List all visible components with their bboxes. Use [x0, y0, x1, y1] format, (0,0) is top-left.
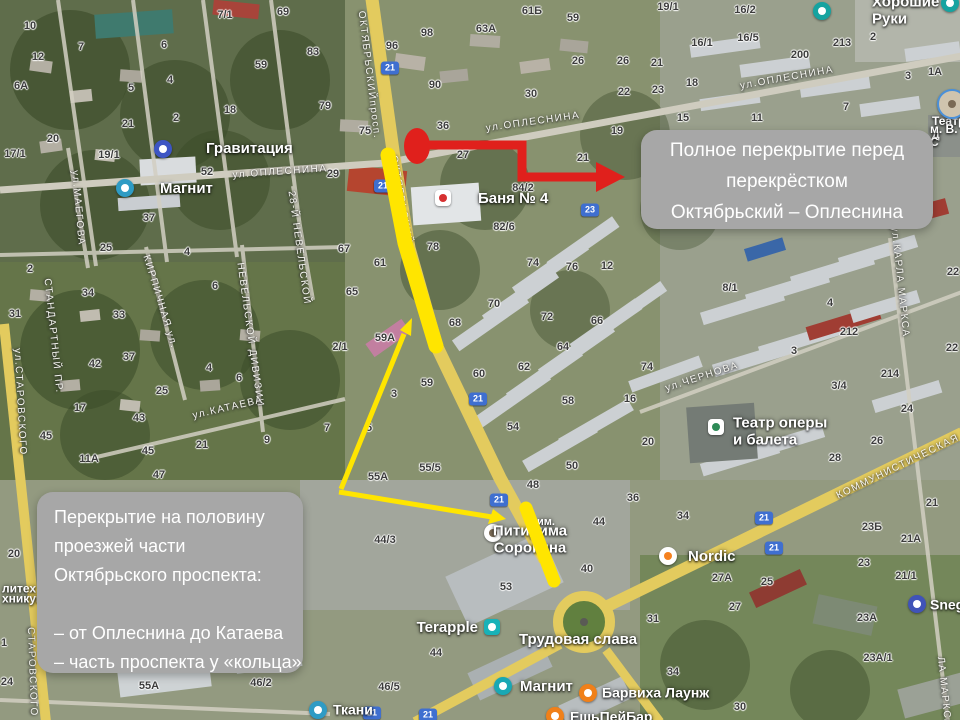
building-number: 18 — [686, 77, 698, 89]
poi-icon-glyph — [913, 600, 921, 608]
building-number: 19 — [611, 125, 623, 137]
poi-label: Магнит — [520, 679, 573, 696]
building-number: 17 — [74, 402, 86, 414]
building-number: 82/6 — [493, 221, 514, 233]
building-number: 19/1 — [657, 1, 678, 13]
map-decor — [790, 252, 875, 289]
building-number: 21 — [122, 118, 134, 130]
poi-icon-glyph — [551, 712, 559, 720]
building-number: 8/1 — [722, 282, 737, 294]
building-number: 2 — [27, 263, 33, 275]
building-number: 63А — [476, 23, 496, 35]
road-shield: 23 — [581, 204, 599, 217]
callout-line: Перекрытие на половину — [54, 503, 303, 532]
building-number: 15 — [677, 112, 689, 124]
building-number: 26 — [871, 435, 883, 447]
road-shield: 21 — [490, 494, 508, 507]
poi-label: ЕшьПейБар — [570, 709, 652, 720]
map-decor — [538, 321, 615, 380]
map-decor — [240, 330, 340, 430]
road-shield: 21 — [469, 393, 487, 406]
poi-icon-glyph — [314, 706, 322, 714]
map-decor — [467, 640, 552, 701]
building-number: 4 — [167, 74, 173, 86]
map: 10126А767/169835954182212017/119/1523798… — [0, 0, 960, 720]
map-decor — [712, 340, 797, 377]
map-decor — [559, 39, 588, 54]
street-label: ул.МАЕГОВА — [69, 170, 87, 246]
building-number: 27 — [729, 601, 741, 613]
building-number: 61 — [374, 257, 386, 269]
building-number: 31 — [9, 308, 21, 320]
building-number: 26 — [572, 55, 584, 67]
street-label: ул.ОПЛЕСНИНА — [739, 64, 835, 91]
map-decor — [859, 96, 920, 117]
map-decor — [790, 650, 870, 720]
building-number: 74 — [641, 361, 653, 373]
building-number: 55А — [368, 471, 388, 483]
poi-icon — [546, 707, 564, 720]
building-number: 46/5 — [378, 681, 399, 693]
map-decor — [140, 329, 161, 341]
building-number: 34 — [677, 510, 689, 522]
building-number: 55/5 — [419, 462, 440, 474]
building-number: 70 — [488, 298, 500, 310]
map-decor — [0, 262, 345, 480]
half-closure-arrow-1 — [341, 318, 412, 489]
building-number: 25 — [100, 242, 112, 254]
building-number: 76 — [566, 261, 578, 273]
map-decor — [79, 309, 100, 322]
map-decor — [813, 594, 878, 636]
poi-icon-glyph — [499, 682, 507, 690]
building-number: 27А — [712, 572, 732, 584]
building-number: 69 — [277, 6, 289, 18]
map-decor — [522, 421, 598, 472]
building-number: 24 — [901, 403, 913, 415]
building-number: 214 — [881, 368, 899, 380]
map-decor — [744, 237, 786, 261]
building-number: 16/2 — [734, 4, 755, 16]
building-number: 74 — [527, 257, 539, 269]
poi-icon — [309, 701, 327, 719]
street-label: СТАНДАРТНЫЙ ПР. — [41, 278, 64, 394]
map-decor — [212, 0, 259, 19]
map-decor — [530, 270, 610, 350]
building-number: 33 — [113, 309, 125, 321]
poi-label: м. В. С — [930, 123, 960, 149]
building-number: 9 — [264, 434, 270, 446]
road-oktyabrsky — [371, 0, 545, 560]
building-number: 4 — [827, 297, 833, 309]
map-decor — [749, 569, 807, 608]
poi-icon-glyph — [439, 194, 447, 202]
building-number: 20 — [8, 548, 20, 560]
building-number: 21/1 — [895, 570, 916, 582]
poi-icon — [659, 547, 677, 565]
map-decor — [94, 149, 115, 162]
building-number: 67 — [338, 243, 350, 255]
building-number: 3 — [791, 345, 797, 357]
building-number: 20 — [642, 436, 654, 448]
callout-line: – от Оплеснина до Катаева — [54, 619, 303, 648]
building-number: 43 — [133, 412, 145, 424]
building-number: 37 — [123, 351, 135, 363]
building-number: 50 — [566, 460, 578, 472]
map-decor — [558, 676, 632, 720]
poi-icon-glyph — [818, 7, 826, 15]
poi-icon — [813, 2, 831, 20]
callout-line: проезжей части — [54, 532, 303, 561]
map-decor — [394, 53, 426, 71]
poi-label: Terapple — [417, 620, 478, 637]
poi-icon-glyph — [584, 689, 592, 697]
building-number: 7/1 — [217, 9, 232, 21]
map-decor — [29, 59, 52, 74]
building-number: 5 — [128, 82, 134, 94]
poi-label: Театр д — [932, 115, 960, 141]
building-number: 45 — [142, 445, 154, 457]
building-number: 25 — [156, 385, 168, 397]
building-number: 11 — [751, 112, 763, 124]
building-number: 25 — [761, 576, 773, 588]
building-number: 4 — [184, 246, 190, 258]
building-number: 90 — [429, 79, 441, 91]
map-decor — [872, 380, 943, 413]
building-number: 44 — [430, 647, 442, 659]
building-number: 18 — [224, 104, 236, 116]
building-number: 23А/1 — [863, 652, 892, 664]
building-number: 7 — [843, 101, 849, 113]
building-number: 27 — [457, 149, 469, 161]
building-number: 2 — [173, 112, 179, 124]
poi-label: Гравитация — [206, 141, 293, 158]
map-decor — [30, 289, 51, 302]
poi-icon-glyph — [121, 184, 129, 192]
map-decor — [230, 30, 330, 130]
roundabout — [558, 596, 610, 648]
full-closure-ellipse — [404, 128, 430, 164]
building-number: 42 — [89, 358, 101, 370]
map-decor — [558, 399, 634, 450]
building-number: 58 — [562, 395, 574, 407]
building-number: 31 — [647, 613, 659, 625]
callout-line: Полное перекрытие перед — [641, 135, 933, 166]
building-number: 23 — [858, 557, 870, 569]
building-number: 48 — [527, 479, 539, 491]
poi-label: Питирима Сорокина — [493, 524, 567, 557]
poi-icon — [941, 0, 959, 12]
building-number: 21 — [926, 497, 938, 509]
map-decor — [240, 329, 261, 342]
map-decor — [512, 239, 589, 298]
street-label: ул.ОПЛЕСНИНА — [485, 110, 581, 134]
map-decor — [119, 399, 140, 412]
building-number: 36 — [627, 492, 639, 504]
poi-label: Баня № 4 — [478, 191, 548, 208]
poi-icon — [484, 619, 500, 635]
street-label: ул.СТАРОВСКОГО — [12, 348, 29, 456]
building-number: 22 — [946, 342, 958, 354]
street-label: ул.КАРЛА МАРКСА — [889, 226, 912, 338]
building-number: 29 — [327, 168, 339, 180]
building-number: 68 — [449, 317, 461, 329]
poi-icon — [579, 684, 597, 702]
building-number: 21 — [651, 57, 663, 69]
building-number: 62 — [518, 361, 530, 373]
poi-icon-glyph — [946, 0, 954, 7]
building-number: 7 — [324, 422, 330, 434]
map-decor — [519, 58, 550, 74]
building-number: 20 — [47, 133, 59, 145]
building-number: 66 — [591, 315, 603, 327]
building-number: 44 — [593, 516, 605, 528]
building-number: 40 — [581, 563, 593, 575]
building-number: 21 — [196, 439, 208, 451]
building-number: 212 — [840, 326, 858, 338]
map-decor — [39, 139, 62, 154]
building-number: 61Б — [522, 5, 542, 17]
building-number: 64 — [557, 341, 569, 353]
poi-label: Ткани — [333, 702, 373, 717]
poi-icon-glyph — [712, 423, 720, 431]
building-number: 21А — [901, 533, 921, 545]
map-decor — [699, 91, 760, 111]
map-decor — [340, 119, 369, 132]
map-decor — [120, 69, 143, 83]
poi-icon — [908, 595, 926, 613]
building-number: 34 — [667, 666, 679, 678]
map-decor — [94, 9, 173, 38]
poi-icon-glyph — [159, 145, 167, 153]
road-oktyabrsky-sw — [415, 644, 560, 720]
poi-label: им. — [537, 516, 555, 528]
building-number: 59А — [375, 332, 395, 344]
map-decor — [300, 480, 630, 610]
road-shield: 21 — [363, 707, 381, 720]
map-decor — [69, 89, 92, 103]
map-decor — [411, 183, 481, 226]
map-decor — [700, 288, 785, 325]
building-number: 24 — [1, 676, 13, 688]
poi-icon — [435, 190, 451, 206]
street-label: КИРПИЧНАЯ ул. — [140, 254, 179, 350]
building-number: 55А — [139, 680, 159, 692]
map-decor — [10, 10, 130, 130]
map-decor — [470, 34, 501, 48]
street-label: ОКТЯБРЬСКИЙ — [388, 155, 414, 246]
building-number: 19/1 — [98, 149, 119, 161]
building-number: 6 — [236, 372, 242, 384]
map-decor — [689, 35, 760, 58]
building-number: 53 — [500, 581, 512, 593]
callout-line — [54, 590, 303, 619]
building-number: 22 — [947, 266, 959, 278]
building-number: 5 — [366, 422, 372, 434]
building-number: 46/2 — [250, 677, 271, 689]
street-label: ЛА МАРКСА — [935, 656, 953, 720]
building-number: 30 — [525, 88, 537, 100]
building-number: 44/3 — [374, 534, 395, 546]
map-decor — [200, 379, 221, 391]
building-number: 52 — [201, 166, 213, 178]
building-number: 3 — [391, 388, 397, 400]
map-decor — [345, 0, 660, 480]
poi-icon — [116, 179, 134, 197]
road-se-branch — [606, 650, 660, 720]
roundabout-monument — [580, 618, 588, 626]
street-label: ул.КАТАЕВА — [192, 395, 265, 422]
map-decor — [855, 0, 960, 62]
building-number: 72 — [541, 311, 553, 323]
building-number: 65 — [346, 286, 358, 298]
road-shield: 21 — [381, 62, 399, 75]
building-number: 3/4 — [831, 380, 846, 392]
building-number: 6 — [161, 39, 167, 51]
building-number: 213 — [833, 37, 851, 49]
building-number: 1 — [1, 637, 7, 649]
poi-icon-glyph — [489, 529, 497, 537]
poi-label: Театр оперы и балета — [733, 416, 827, 449]
map-decor — [139, 157, 196, 186]
building-number: 6 — [212, 280, 218, 292]
building-number: 16/5 — [737, 32, 758, 44]
building-number: 23Б — [862, 521, 882, 533]
map-decor — [440, 140, 530, 230]
road-shield: 21 — [755, 512, 773, 525]
poi-icon — [484, 524, 502, 542]
building-number: 54 — [507, 421, 519, 433]
poi-label: Nordic — [688, 549, 736, 566]
road-shield: 21 — [419, 709, 437, 720]
street-label: НЕВЕЛЬСКОЙ ДИВИЗИИ — [234, 262, 265, 408]
map-decor — [20, 290, 140, 410]
street-label: ул.ОПЛЕСНИНА — [232, 163, 328, 181]
map-decor — [897, 671, 960, 718]
building-number: 1А — [928, 66, 942, 78]
building-number: 22 — [618, 86, 630, 98]
building-number: 83 — [307, 46, 319, 58]
building-number: 26 — [617, 55, 629, 67]
building-number: 59 — [421, 377, 433, 389]
building-number: 98 — [421, 27, 433, 39]
closed-segment-oktyabrsky — [388, 155, 436, 346]
building-number: 11А — [79, 453, 99, 465]
building-number: 10 — [24, 20, 36, 32]
map-decor — [120, 60, 230, 170]
poi-icon — [154, 140, 172, 158]
building-number: 47 — [153, 469, 165, 481]
building-number: 12 — [601, 260, 613, 272]
callout-full-closure: Полное перекрытие перед перекрёстком Окт… — [641, 130, 933, 229]
map-decor — [452, 292, 529, 351]
building-number: 78 — [427, 241, 439, 253]
map-decor — [118, 194, 181, 211]
road-shield: 21 — [374, 180, 392, 193]
street-label: КОММУНИСТИЧЕСКАЯ ул. — [835, 423, 960, 502]
building-number: 17/1 — [4, 148, 25, 160]
map-decor — [806, 305, 882, 340]
map-decor — [60, 390, 150, 480]
building-number: 28 — [829, 452, 841, 464]
building-number: 59 — [255, 59, 267, 71]
street-label: ОКТЯБРЬСКИЙпросп. — [356, 10, 383, 139]
map-decor — [640, 555, 960, 720]
building-number: 7 — [78, 41, 84, 53]
building-number: 45 — [40, 430, 52, 442]
building-number: 2 — [870, 31, 876, 43]
map-decor — [170, 130, 270, 230]
poi-icon-glyph — [948, 100, 956, 108]
building-number: 59 — [567, 12, 579, 24]
road-shield: 21 — [765, 542, 783, 555]
building-number: 96 — [386, 40, 398, 52]
map-decor — [739, 55, 810, 78]
street-label: ул.ЧЕРНОВА — [664, 360, 740, 394]
building-number: 2/1 — [332, 341, 347, 353]
poi-label: Трудовая слава — [519, 632, 637, 649]
callout-half-closure: Перекрытие на половину проезжей части Ок… — [37, 492, 303, 673]
poi-label: Барвиха Лаунж — [602, 685, 709, 700]
map-decor — [799, 75, 870, 98]
map-decor — [482, 267, 559, 326]
building-number: 4 — [206, 362, 212, 374]
callout-line: Октябрьского проспекта: — [54, 561, 303, 590]
map-decor — [60, 379, 81, 392]
poi-icon — [937, 89, 960, 119]
building-number: 23 — [652, 84, 664, 96]
building-number: 200 — [791, 49, 809, 61]
poi-label: Магнит — [160, 181, 213, 198]
building-number: 16 — [624, 393, 636, 405]
map-decor — [904, 41, 960, 62]
map-decor — [347, 165, 407, 197]
building-number: 3 — [905, 70, 911, 82]
poi-icon-glyph — [488, 623, 496, 631]
building-number: 6А — [14, 80, 28, 92]
callout-line: – часть проспекта у «кольца» — [54, 648, 303, 677]
map-decor — [474, 369, 551, 428]
building-number: 30 — [734, 701, 746, 713]
map-decor — [660, 620, 750, 710]
road-kommunisticheskaya — [583, 433, 960, 618]
map-decor — [628, 356, 703, 393]
building-number: 60 — [473, 368, 485, 380]
poi-icon — [708, 419, 724, 435]
map-decor — [758, 322, 843, 359]
poi-icon-glyph — [664, 552, 672, 560]
callout-line: перекрёстком — [641, 166, 933, 197]
map-decor — [838, 235, 918, 271]
map-decor — [700, 441, 780, 477]
map-decor — [150, 280, 260, 390]
building-number: 34 — [82, 287, 94, 299]
building-number: 36 — [437, 120, 449, 132]
map-decor — [850, 290, 921, 323]
building-number: 37 — [143, 212, 155, 224]
building-number: 84/2 — [512, 182, 533, 194]
map-decor — [400, 230, 480, 310]
map-decor — [445, 532, 563, 626]
half-closure-arrow-2 — [339, 492, 506, 524]
callout-line: Октябрьский – Оплеснина — [641, 197, 933, 228]
poi-label: Хорошие Руки — [872, 0, 960, 28]
map-decor — [570, 298, 643, 355]
map-decor — [365, 319, 410, 357]
building-number: 79 — [319, 100, 331, 112]
map-decor — [660, 0, 960, 480]
poi-label: литех — [2, 582, 36, 595]
